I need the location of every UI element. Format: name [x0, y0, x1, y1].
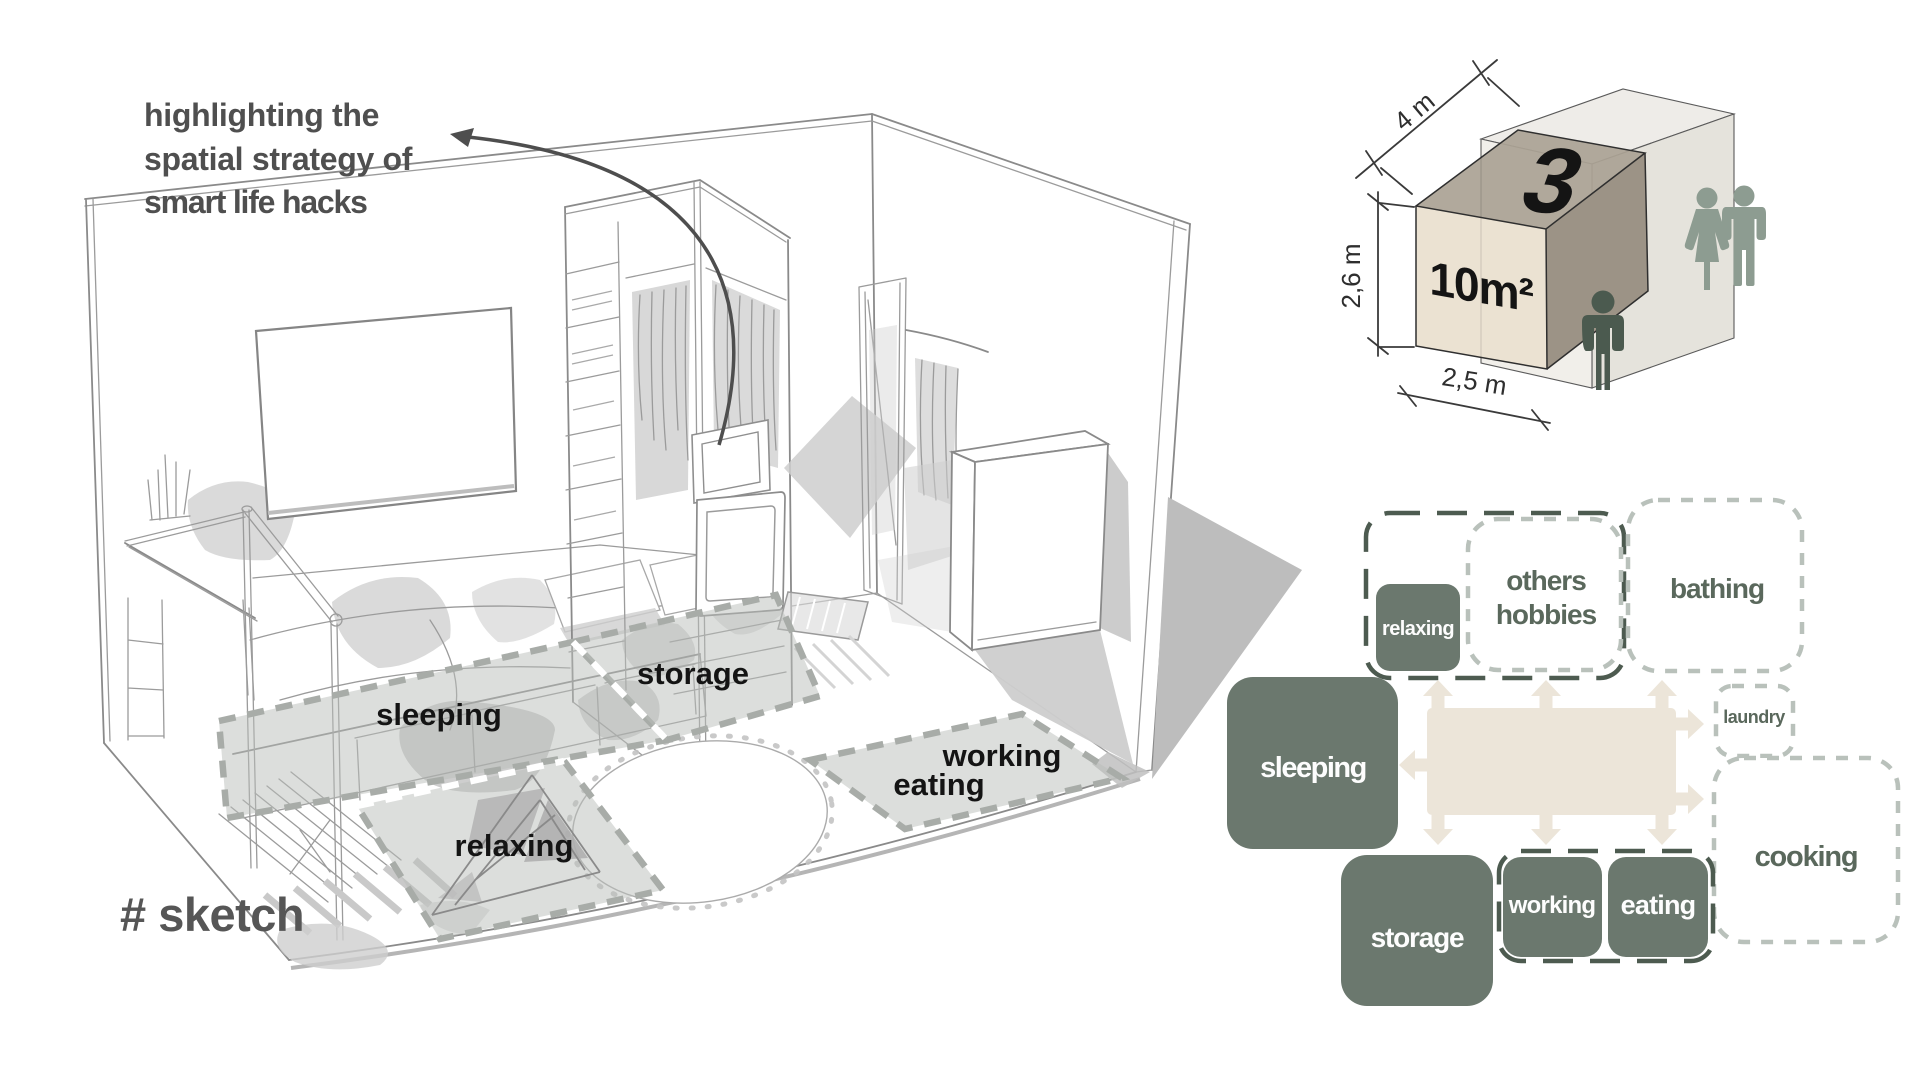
svg-text:storage: storage	[1371, 922, 1464, 953]
svg-text:# sketch: # sketch	[120, 888, 304, 941]
svg-text:eating: eating	[1621, 890, 1696, 920]
svg-text:cooking: cooking	[1755, 841, 1858, 873]
svg-text:relaxing: relaxing	[1382, 618, 1454, 640]
svg-text:laundry: laundry	[1723, 707, 1785, 727]
svg-text:sleeping: sleeping	[376, 697, 502, 732]
svg-text:smart life hacks: smart life hacks	[144, 184, 367, 220]
svg-text:working: working	[1508, 892, 1596, 919]
svg-text:sleeping: sleeping	[1260, 752, 1366, 784]
svg-text:hobbies: hobbies	[1496, 599, 1597, 630]
svg-text:relaxing: relaxing	[455, 828, 574, 863]
svg-text:spatial strategy of: spatial strategy of	[144, 141, 413, 177]
svg-text:highlighting the: highlighting the	[144, 97, 379, 133]
svg-text:others: others	[1506, 565, 1586, 596]
svg-text:eating: eating	[893, 767, 984, 802]
svg-text:bathing: bathing	[1670, 573, 1764, 604]
svg-text:storage: storage	[637, 656, 749, 691]
svg-text:2,6 m: 2,6 m	[1336, 243, 1366, 308]
